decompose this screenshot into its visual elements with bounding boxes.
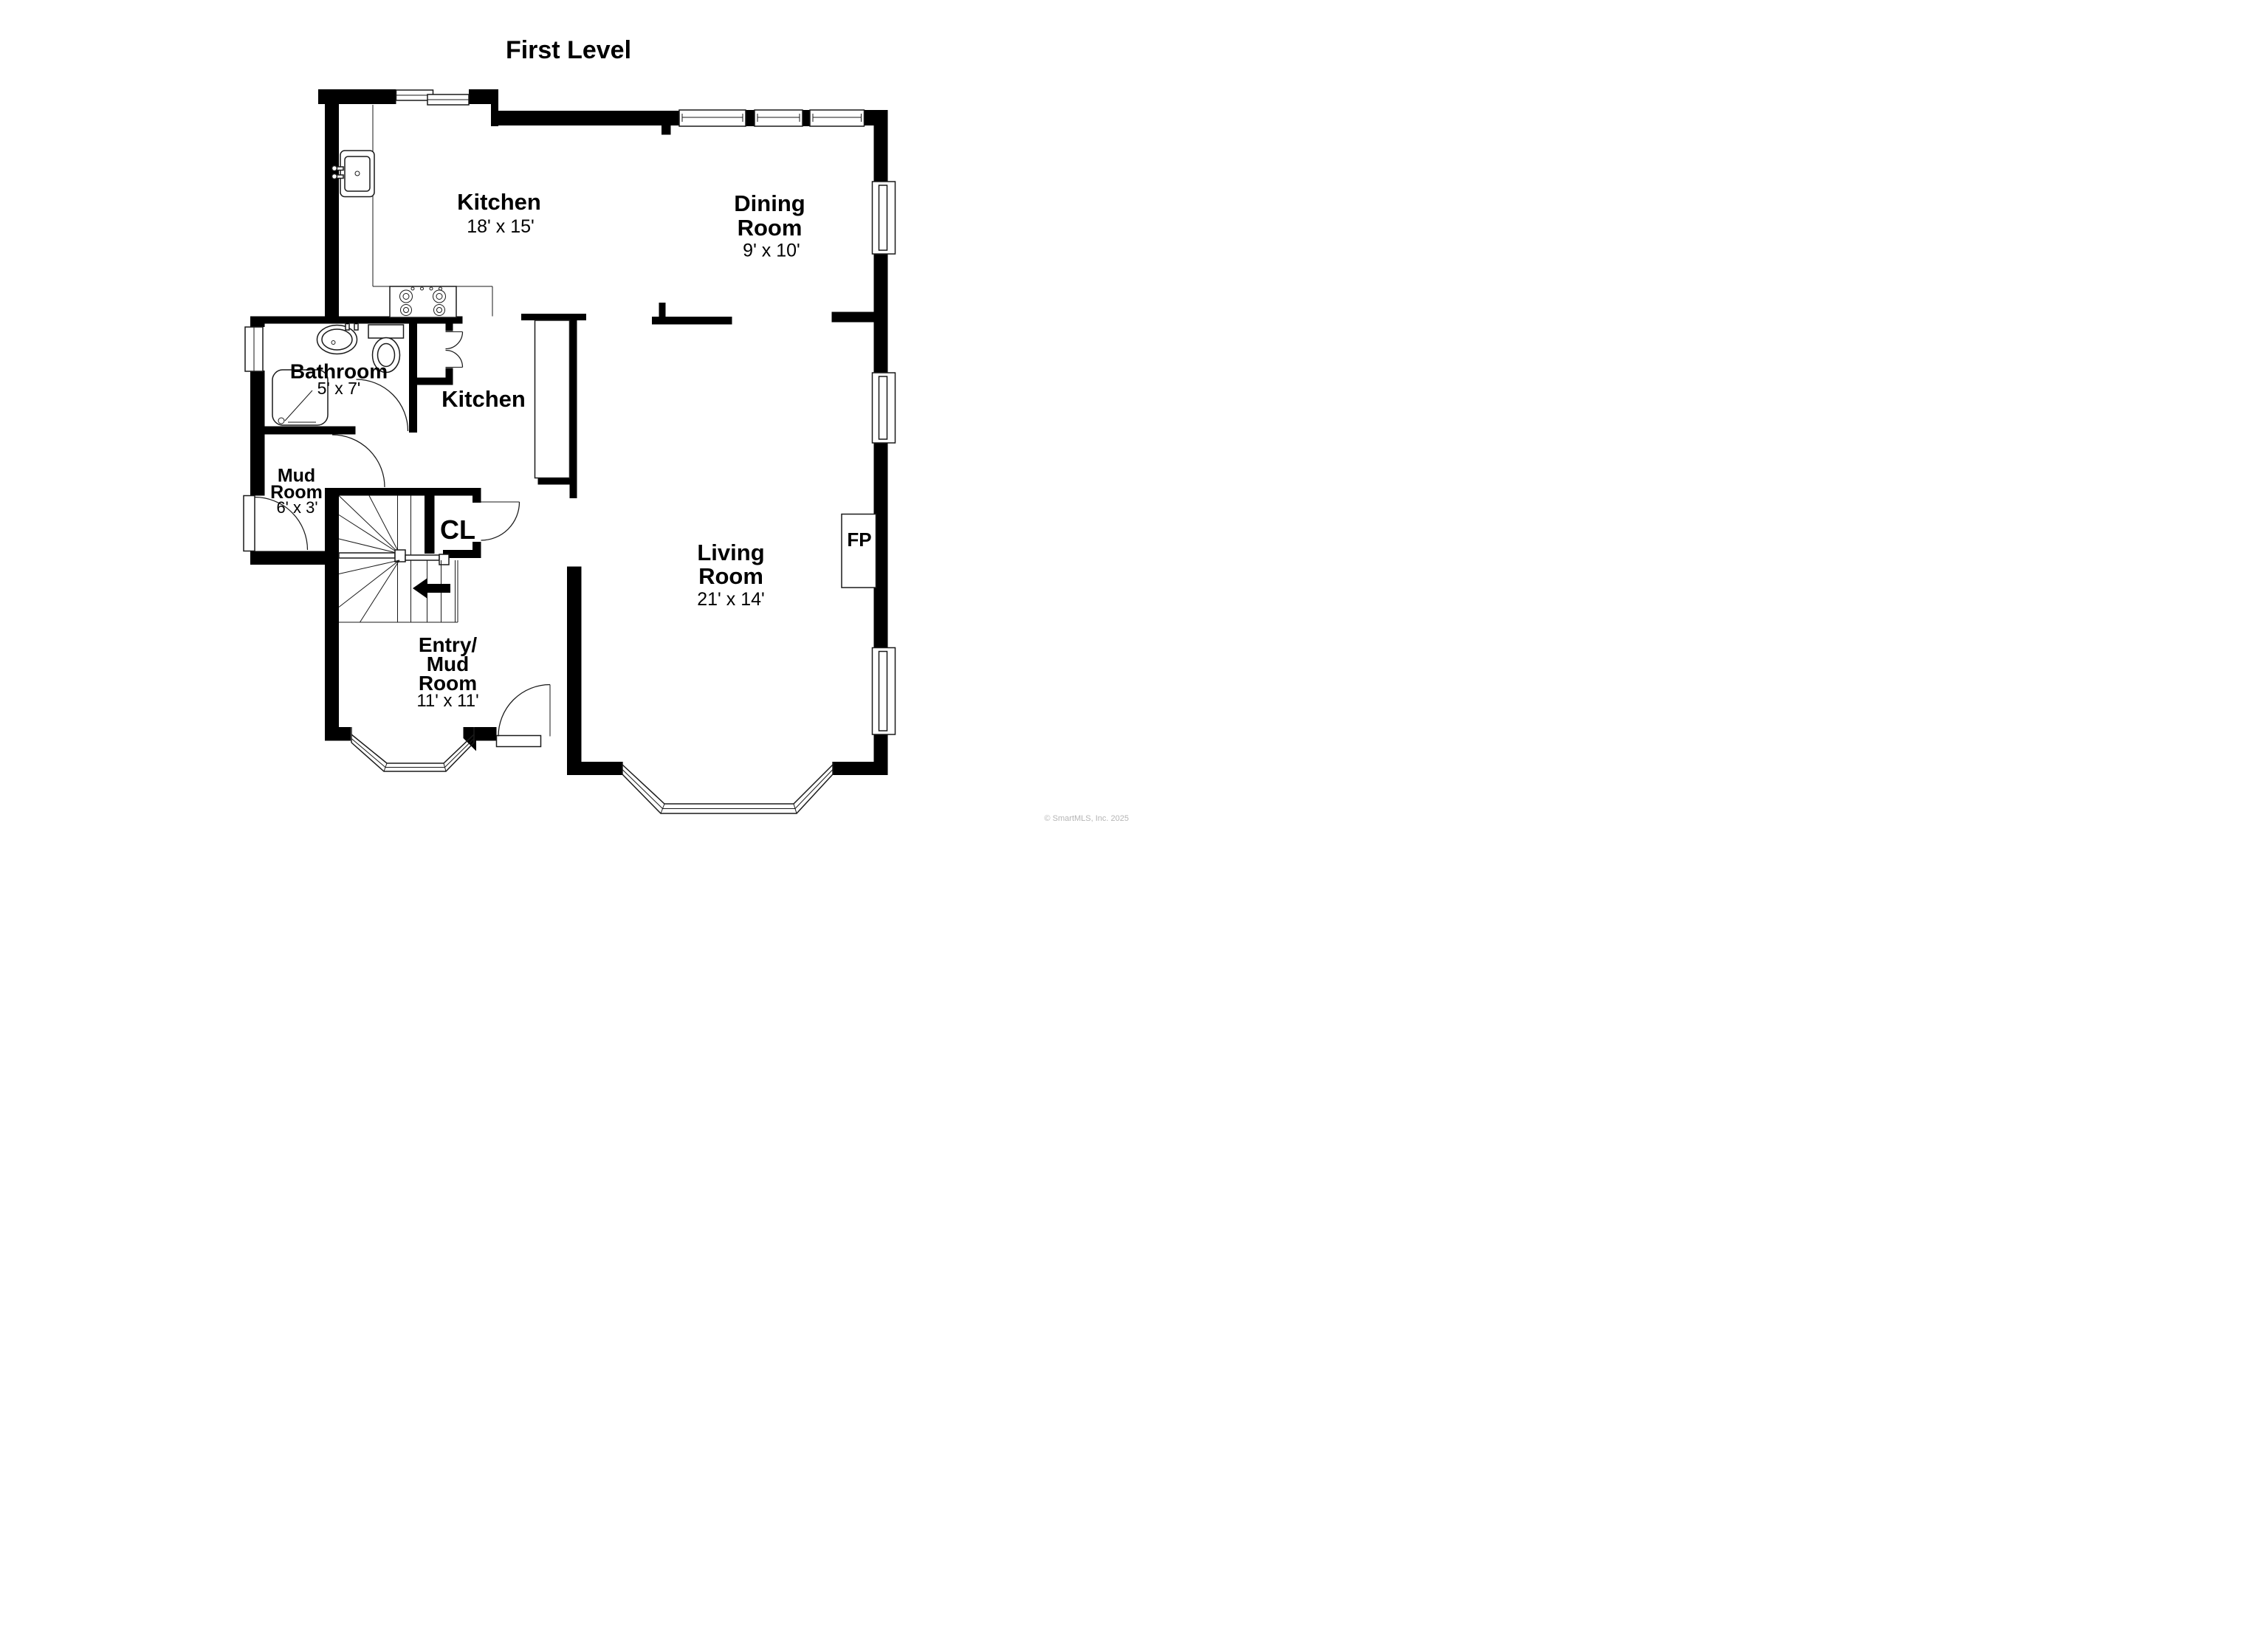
pantry-double-doors [446,332,463,368]
stairs-direction-arrow-icon [413,578,450,599]
mud-room-hall-door [332,435,385,487]
bathroom-door [357,379,408,431]
dining-label-line1: Dining [734,190,805,216]
entry-bay-window [351,727,474,771]
kitchen-hall-label: Kitchen [441,386,526,412]
fireplace-label: FP [847,529,871,551]
living-right-window-lower [873,648,896,735]
bathroom-dims: 5' x 7' [317,379,361,398]
page-title: First Level [506,36,631,64]
fireplace: FP [842,514,876,588]
front-door [497,685,551,747]
closet-label: CL [440,514,475,545]
dining-label-line2: Room [738,215,803,241]
peninsula-counter [535,320,570,478]
mud-room-dims: 6' x 3' [276,498,317,517]
kitchen-label: Kitchen [457,189,541,215]
entry-dims: 11' x 11' [416,691,478,711]
copyright-watermark: © SmartMLS, Inc. 2025 [1045,814,1130,823]
floor-plan-page: FP First Level Kitchen 18' x 15' Dining … [0,0,1134,824]
living-room-bay-window [622,762,833,813]
closet-door [481,502,520,540]
living-label-line1: Living [697,540,764,565]
dining-dims: 9' x 10' [743,241,800,261]
living-right-window-upper [873,373,896,443]
bathroom-left-window [245,327,263,371]
dining-right-window [873,182,896,254]
kitchen-dims: 18' x 15' [467,216,535,237]
stove [390,286,456,317]
bathroom-sink [317,321,359,354]
dining-top-window-3 [810,110,865,126]
dining-top-window-2 [755,110,803,126]
kitchen-top-window [396,90,470,105]
labels: First Level Kitchen 18' x 15' Dining Roo… [270,36,1129,823]
floor-plan-drawing: FP First Level Kitchen 18' x 15' Dining … [0,0,1134,824]
dining-top-window-1 [679,110,746,126]
living-label-line2: Room [698,563,763,589]
living-dims: 21' x 14' [697,589,765,610]
